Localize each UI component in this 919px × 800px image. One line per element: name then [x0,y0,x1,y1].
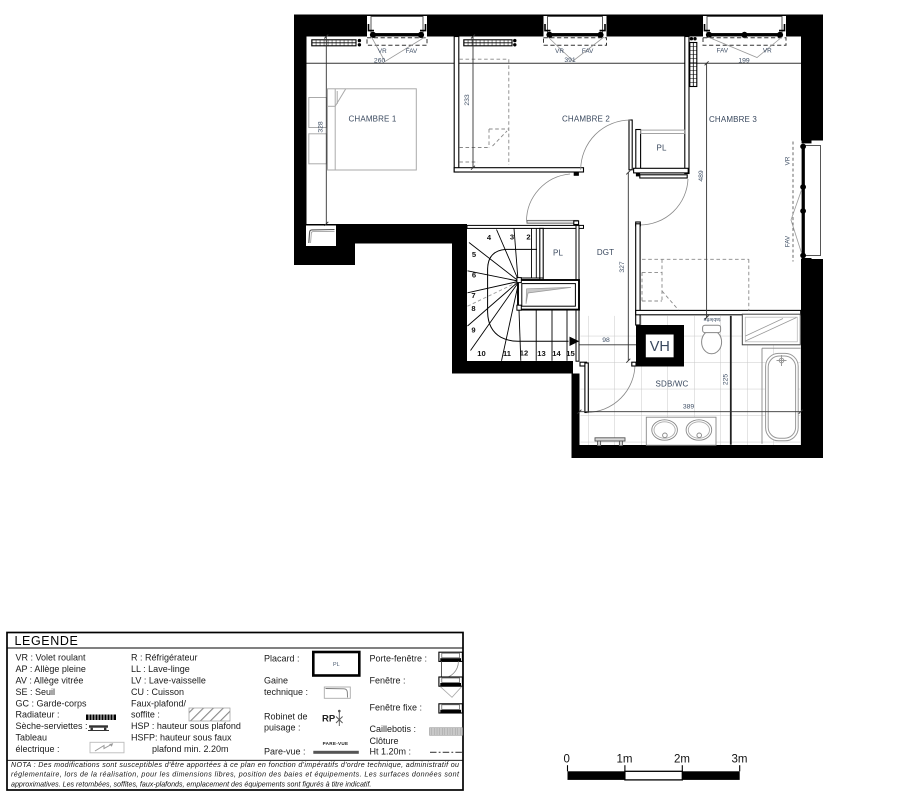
svg-text:6: 6 [472,271,476,280]
svg-text:PL: PL [553,249,563,258]
svg-text:328: 328 [318,121,325,133]
svg-text:CHAMBRE 1: CHAMBRE 1 [348,115,396,124]
svg-text:0: 0 [564,754,570,766]
svg-text:10: 10 [477,349,485,358]
svg-text:Sèche-serviettes :: Sèche-serviettes : [16,721,88,731]
svg-text:LL : Lave-linge: LL : Lave-linge [131,664,190,674]
svg-text:260: 260 [374,58,386,65]
svg-text:GC : Garde-corps: GC : Garde-corps [16,698,88,708]
svg-text:puisage :: puisage : [264,722,301,732]
svg-text:Faux-plafond/: Faux-plafond/ [131,698,187,708]
svg-text:VH: VH [650,339,670,355]
svg-text:Caillebotis :: Caillebotis : [370,724,417,734]
svg-text:PARE-VUE: PARE-VUE [323,741,349,746]
svg-text:PL: PL [656,144,666,153]
svg-text:SDB/WC: SDB/WC [656,380,689,389]
svg-text:NOTA : Des modifications sont: NOTA : Des modifications sont susceptibl… [11,761,459,769]
svg-text:Tableau: Tableau [16,733,48,743]
svg-text:FAV: FAV [582,48,594,55]
svg-text:13: 13 [537,349,545,358]
svg-text:électrique :: électrique : [16,744,60,754]
svg-text:391: 391 [564,57,576,64]
svg-text:Ht 1.20m :: Ht 1.20m : [370,747,412,757]
svg-text:Robinet de: Robinet de [264,712,308,722]
svg-text:2m: 2m [674,754,690,766]
svg-text:tablette: tablette [703,316,720,322]
svg-text:7: 7 [471,291,475,300]
svg-text:1m: 1m [617,754,633,766]
svg-text:VR: VR [763,47,772,54]
svg-text:AP : Allège pleine: AP : Allège pleine [16,664,86,674]
svg-text:11: 11 [503,349,512,358]
svg-text:3: 3 [510,233,514,242]
svg-text:RP: RP [322,714,336,725]
svg-text:CHAMBRE 3: CHAMBRE 3 [709,115,757,124]
svg-text:PL: PL [333,662,340,668]
svg-text:plafond min. 2.20m: plafond min. 2.20m [152,744,229,754]
svg-text:LEGENDE: LEGENDE [15,634,79,648]
svg-text:14: 14 [552,349,561,358]
svg-text:FAV: FAV [406,48,418,55]
svg-text:VR: VR [555,48,564,55]
svg-text:CU : Cuisson: CU : Cuisson [131,687,184,697]
svg-text:389: 389 [683,404,695,411]
svg-text:Clôture: Clôture [370,736,399,746]
svg-text:R : Réfrigérateur: R : Réfrigérateur [131,653,198,663]
svg-text:15: 15 [566,349,575,358]
svg-text:Fenêtre fixe :: Fenêtre fixe : [370,703,423,713]
svg-text:réglementaire, lors de la réal: réglementaire, lors de la réalisation, p… [11,771,460,779]
svg-text:199: 199 [738,57,750,64]
svg-text:489: 489 [698,170,705,182]
svg-text:12: 12 [520,349,528,358]
svg-text:LV : Lave-vaisselle: LV : Lave-vaisselle [131,676,206,686]
svg-text:225: 225 [722,374,729,386]
svg-text:98: 98 [602,337,610,344]
svg-text:VR : Volet roulant: VR : Volet roulant [16,653,87,663]
svg-text:Radiateur :: Radiateur : [16,710,60,720]
svg-text:Pare-vue :: Pare-vue : [264,747,306,757]
svg-text:SE : Seuil: SE : Seuil [16,687,56,697]
svg-text:Gaine: Gaine [264,676,288,686]
svg-text:approximatives. Les retombées,: approximatives. Les retombées, soffites,… [11,781,371,789]
svg-text:9: 9 [471,326,475,335]
svg-text:2: 2 [526,233,530,242]
svg-text:technique :: technique : [264,687,308,697]
svg-text:VR: VR [378,48,387,55]
svg-text:Fenêtre :: Fenêtre : [370,676,406,686]
svg-text:3m: 3m [732,754,748,766]
svg-text:8: 8 [471,304,475,313]
svg-text:DGT: DGT [597,248,614,257]
svg-text:AV : Allège vitrée: AV : Allège vitrée [16,676,84,686]
svg-text:FAV: FAV [785,235,792,247]
svg-text:soffite :: soffite : [131,710,160,720]
svg-text:CHAMBRE 2: CHAMBRE 2 [562,115,610,124]
svg-text:VR: VR [785,156,792,165]
svg-text:233: 233 [464,94,471,106]
svg-text:FAV: FAV [717,47,729,54]
svg-text:327: 327 [619,261,626,273]
svg-text:HSFP: hauteur sous faux: HSFP: hauteur sous faux [131,733,232,743]
svg-text:Placard :: Placard : [264,654,300,664]
svg-text:Porte-fenêtre :: Porte-fenêtre : [370,654,428,664]
svg-text:HSP : hauteur sous plafond: HSP : hauteur sous plafond [131,721,241,731]
